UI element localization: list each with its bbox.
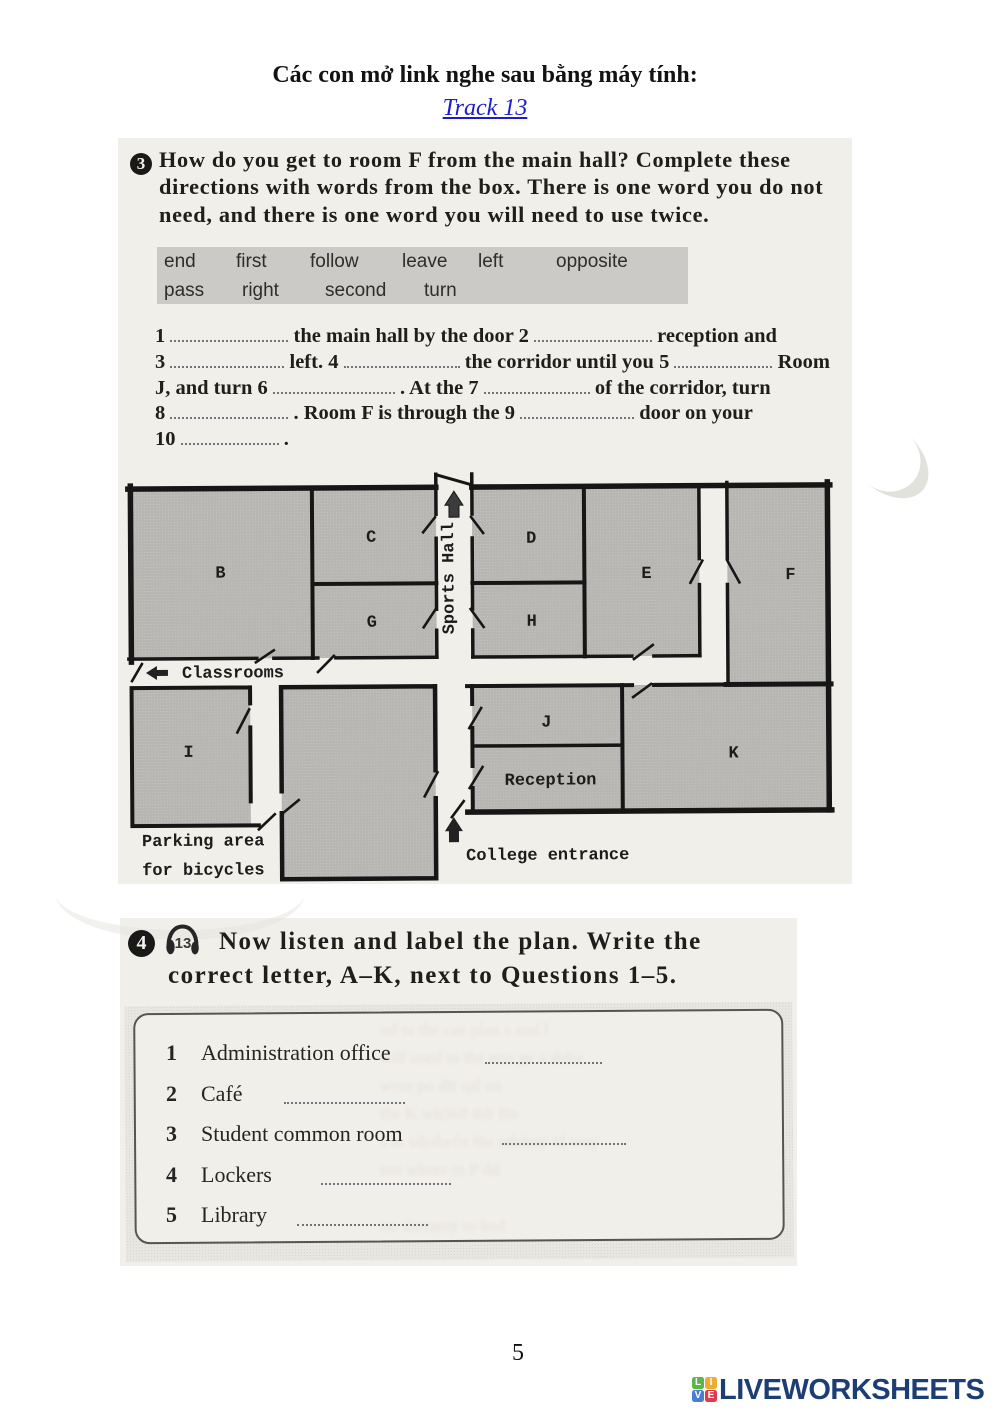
svg-text:Classrooms: Classrooms	[182, 664, 284, 684]
svg-text:Parking area: Parking area	[142, 832, 265, 852]
svg-text:C: C	[366, 529, 376, 548]
svg-text:G: G	[367, 614, 377, 633]
svg-text:B: B	[215, 565, 225, 584]
svg-text:F: F	[785, 566, 795, 585]
svg-text:College entrance: College entrance	[466, 846, 629, 866]
svg-text:E: E	[641, 565, 651, 584]
svg-text:Reception: Reception	[505, 771, 597, 791]
svg-text:I: I	[183, 744, 193, 763]
svg-text:K: K	[728, 744, 739, 763]
svg-text:J: J	[541, 714, 551, 733]
svg-text:D: D	[526, 530, 536, 549]
svg-text:for bicycles: for bicycles	[142, 861, 265, 881]
svg-text:H: H	[527, 613, 537, 632]
svg-text:Sports Hall: Sports Hall	[440, 522, 460, 634]
